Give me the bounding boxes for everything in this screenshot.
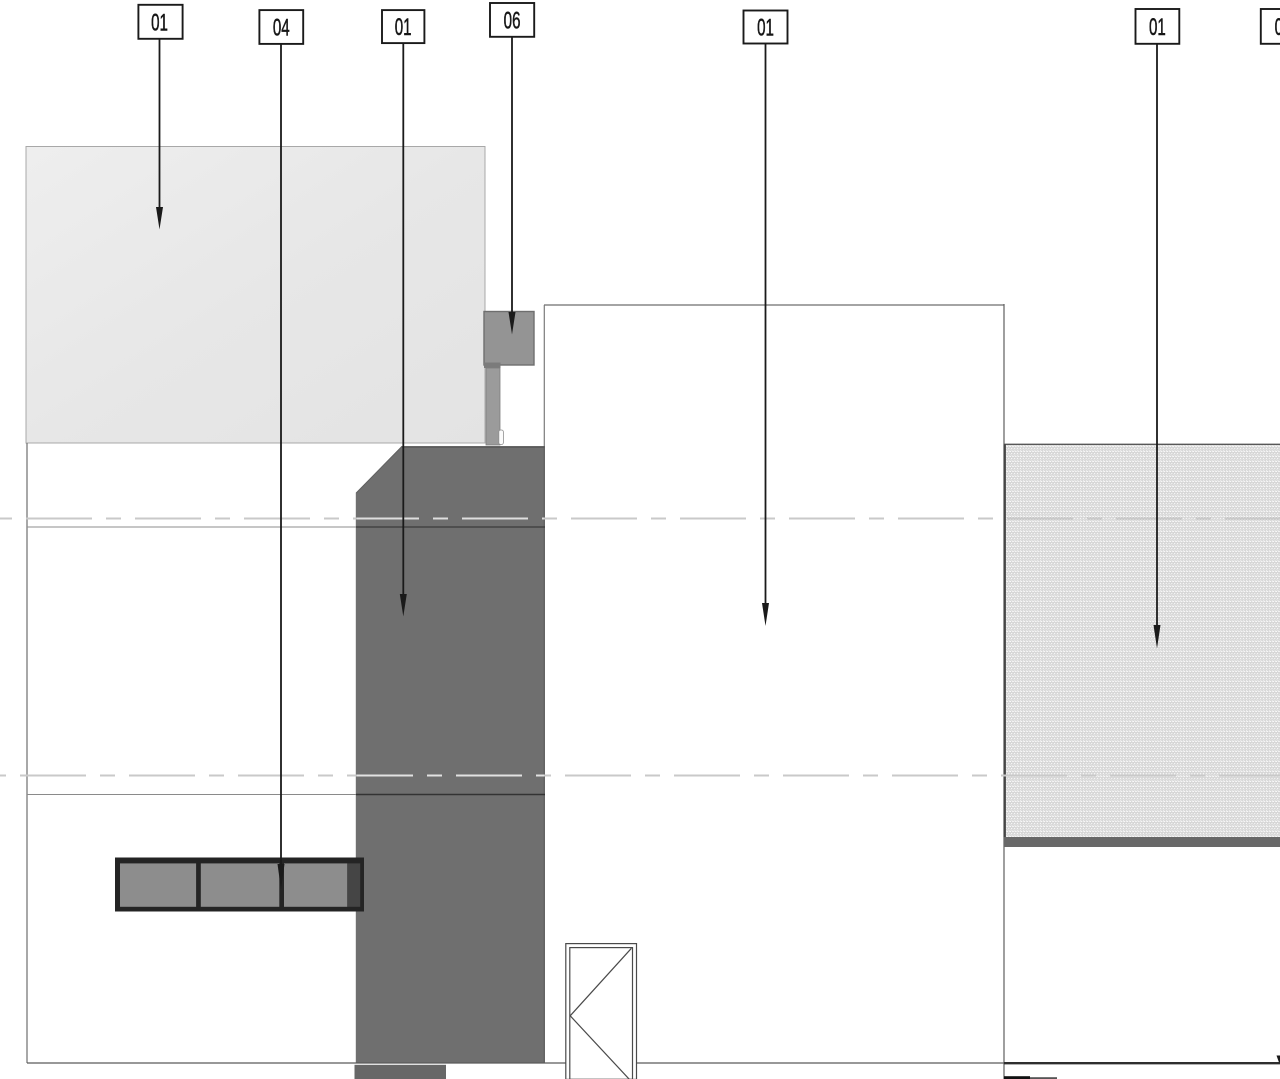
svg-text:04: 04 — [273, 15, 290, 41]
svg-text:01: 01 — [1149, 15, 1166, 41]
svg-text:06: 06 — [504, 8, 521, 34]
svg-text:01: 01 — [151, 10, 168, 36]
svg-text:01: 01 — [757, 15, 774, 41]
svg-text:01: 01 — [395, 15, 412, 41]
svg-text:01: 01 — [1275, 15, 1280, 41]
